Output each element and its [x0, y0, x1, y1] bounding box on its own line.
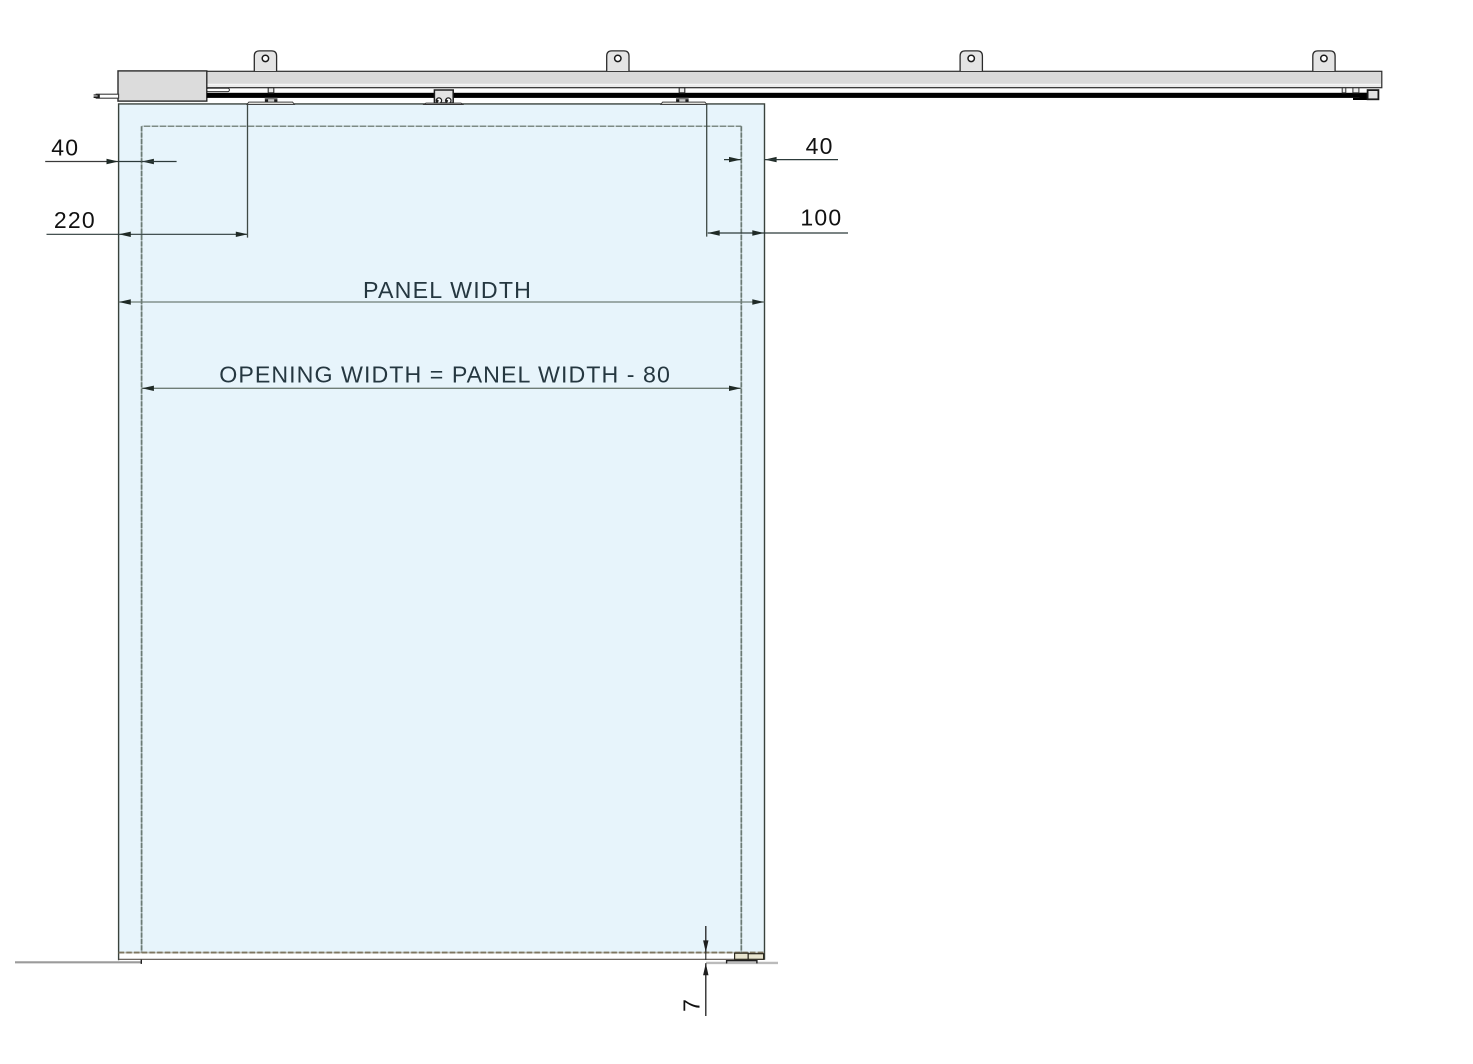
svg-text:220: 220 — [54, 207, 96, 233]
svg-text:7: 7 — [679, 999, 705, 1012]
svg-text:100: 100 — [800, 205, 842, 231]
svg-text:OPENING WIDTH = PANEL WIDTH -: OPENING WIDTH = PANEL WIDTH - 80 — [219, 362, 671, 388]
svg-text:40: 40 — [51, 135, 79, 161]
svg-text:40: 40 — [806, 133, 834, 159]
svg-text:PANEL WIDTH: PANEL WIDTH — [363, 277, 532, 303]
